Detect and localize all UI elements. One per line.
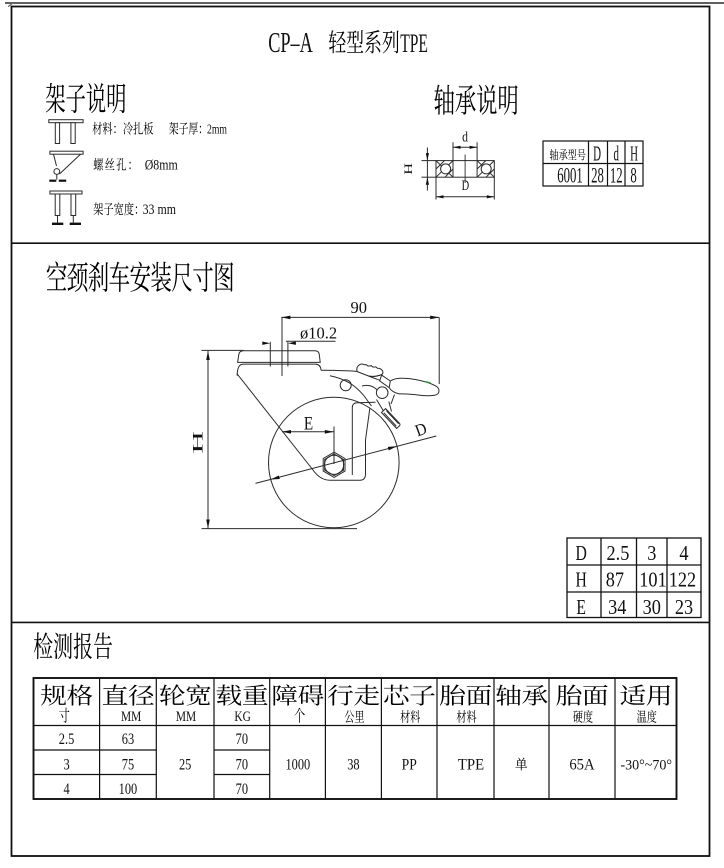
svg-text:PP: PP	[402, 757, 417, 774]
svg-text:70: 70	[236, 781, 248, 799]
svg-text:34: 34	[608, 596, 626, 620]
svg-text:8: 8	[630, 163, 636, 187]
svg-text:H: H	[190, 431, 206, 454]
svg-text:Ø8mm: Ø8mm	[145, 156, 179, 172]
svg-text:3: 3	[63, 756, 69, 774]
svg-text:KG: KG	[234, 708, 251, 725]
svg-text:H: H	[402, 163, 415, 175]
svg-text:4: 4	[63, 781, 69, 799]
svg-text:38: 38	[347, 756, 359, 774]
svg-text:87: 87	[606, 568, 624, 592]
svg-text:101: 101	[639, 568, 666, 592]
svg-text:122: 122	[669, 568, 696, 592]
svg-text:D: D	[576, 542, 587, 566]
svg-text:30: 30	[643, 596, 661, 620]
svg-text:63: 63	[122, 731, 134, 749]
svg-text:75: 75	[122, 756, 134, 774]
svg-text:4: 4	[679, 542, 688, 566]
svg-text:70: 70	[236, 731, 248, 749]
svg-text:d: d	[462, 128, 468, 145]
svg-text:E: E	[304, 413, 313, 434]
svg-text:ø10.2: ø10.2	[300, 324, 337, 343]
svg-text:2mm: 2mm	[207, 122, 227, 137]
svg-text:25: 25	[179, 756, 191, 774]
svg-text:MM: MM	[121, 708, 141, 725]
svg-text:-30°~70°: -30°~70°	[620, 757, 672, 773]
svg-text:3: 3	[647, 542, 656, 566]
svg-text:E: E	[576, 596, 586, 620]
svg-text:23: 23	[675, 596, 693, 620]
svg-text:12: 12	[610, 163, 623, 187]
svg-text:1000: 1000	[285, 756, 310, 774]
svg-text:2.5: 2.5	[59, 731, 74, 749]
svg-text:33 mm: 33 mm	[143, 201, 177, 217]
svg-text:28: 28	[591, 163, 604, 187]
svg-text:6001: 6001	[557, 163, 582, 187]
svg-text:CP–A: CP–A	[268, 27, 313, 59]
svg-text:65A: 65A	[569, 757, 594, 773]
svg-text:90: 90	[351, 298, 368, 317]
svg-text:D: D	[462, 176, 470, 193]
svg-text:70: 70	[236, 756, 248, 774]
svg-text:TPE: TPE	[400, 29, 428, 58]
svg-text:H: H	[576, 568, 588, 592]
svg-text:2.5: 2.5	[606, 542, 629, 566]
svg-text:100: 100	[119, 781, 138, 799]
svg-text:MM: MM	[176, 708, 196, 725]
svg-text:TPE: TPE	[458, 757, 484, 773]
